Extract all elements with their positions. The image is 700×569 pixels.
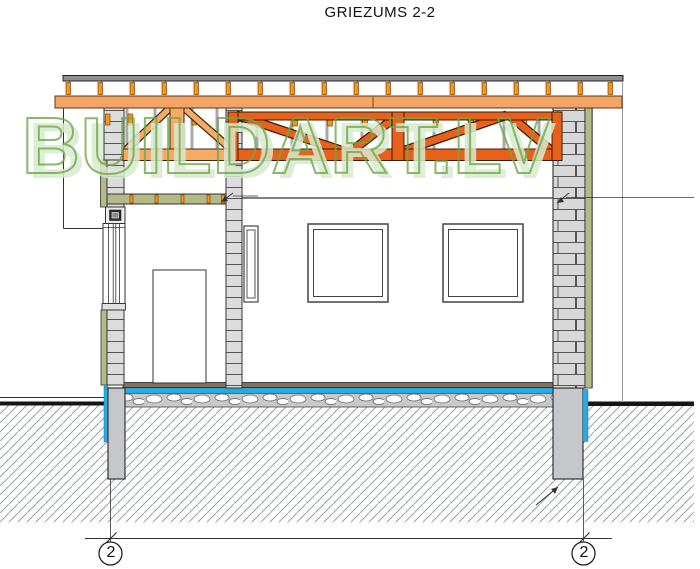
- window-2: [443, 224, 523, 302]
- left-wall-insulation-lower: [101, 310, 107, 385]
- end-post-left: [228, 112, 238, 161]
- grade-line-right: [588, 402, 694, 407]
- center-post: [392, 112, 404, 161]
- floor-slab: [123, 383, 553, 408]
- drawing-title: GRIEZUMS 2-2: [250, 4, 510, 21]
- narrow-window: [244, 226, 258, 302]
- roof-beam: [55, 96, 622, 108]
- end-post-right: [552, 112, 562, 161]
- left-wall-insulation-upper: [101, 160, 108, 207]
- window-sill: [102, 304, 126, 311]
- roof-battens: [66, 81, 613, 96]
- left-wall-masonry-lower: [107, 310, 124, 385]
- door: [153, 270, 206, 383]
- truss-diagonal: [126, 107, 171, 150]
- grade-line-left: [0, 398, 104, 406]
- triangle-truss: [106, 101, 243, 161]
- pier-insulation-right: [583, 390, 588, 442]
- grid-label-left: 2: [99, 541, 123, 565]
- right-wall-insulation: [585, 108, 592, 388]
- roof-sheathing: [63, 76, 623, 82]
- section-drawing: GRIEZUMS 2-2 BUILDART.LV BUILDART.LV 2 2: [0, 0, 700, 569]
- roller-shutter-box: [106, 207, 126, 224]
- main-truss: [228, 112, 562, 161]
- main-room-ceiling: [242, 193, 694, 203]
- floor-gravel-layer: [123, 394, 553, 408]
- drawing-graphics: [0, 0, 700, 569]
- king-post: [170, 101, 184, 155]
- grid-label-right: 2: [572, 541, 596, 565]
- truss-diagonal: [183, 107, 232, 150]
- roof: [55, 76, 623, 109]
- left-wall: [64, 108, 126, 386]
- left-window: [103, 224, 125, 304]
- floor-insulation-blue: [123, 388, 553, 394]
- window-1: [308, 224, 388, 302]
- bottom-chord: [123, 149, 242, 161]
